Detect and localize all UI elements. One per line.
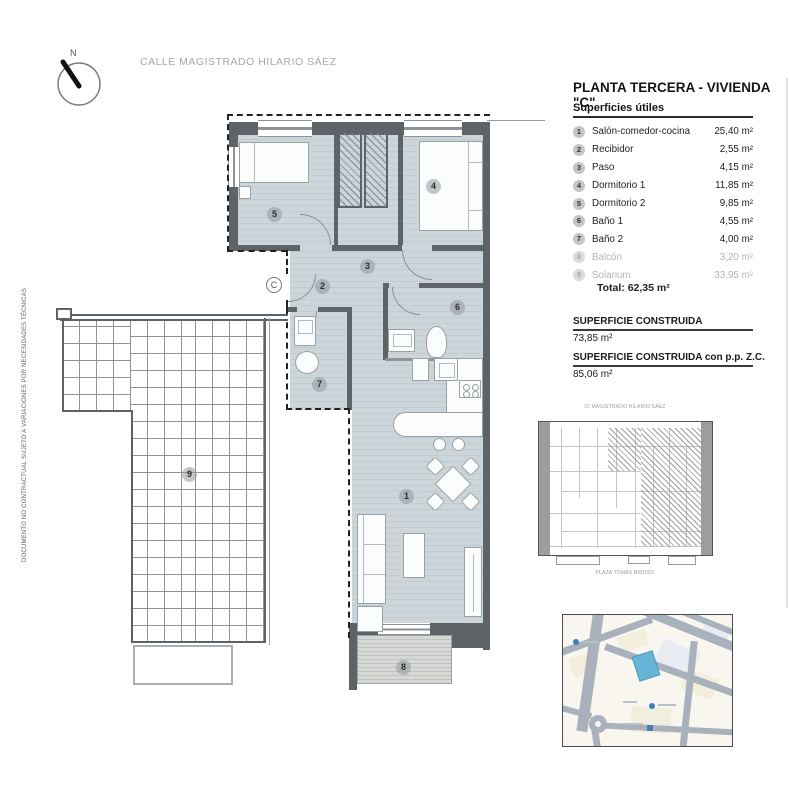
row-name: Dormitorio 1 xyxy=(592,180,715,191)
room-label-3: 3 xyxy=(360,259,375,274)
boundary-bath2-bottom xyxy=(286,408,350,410)
solarium-edge-left-lower xyxy=(131,410,133,643)
disclaimer-note: DOCUMENTO NO CONTRACTUAL SUJETO A VARIAC… xyxy=(22,227,28,562)
solarium-edge-right xyxy=(264,318,266,643)
bath2-toilet-icon xyxy=(295,351,319,374)
row-value: 3,20 m² xyxy=(720,252,753,263)
room-label-5: 5 xyxy=(267,207,282,222)
north-letter: N xyxy=(70,48,77,58)
keyplan-balcony-stub xyxy=(628,556,650,564)
keyplan-unit-highlight xyxy=(641,428,701,546)
surfaces-heading: Superficies útiles xyxy=(573,102,664,114)
row-name: Baño 2 xyxy=(592,234,720,245)
table-row: 7Baño 24,00 m² xyxy=(573,230,753,248)
bed1-pillow-line xyxy=(468,142,469,230)
boundary-top xyxy=(227,114,490,116)
site-line xyxy=(487,120,545,121)
room-label-8: 8 xyxy=(396,660,411,675)
row-value: 4,15 m² xyxy=(720,162,753,173)
stove-icon xyxy=(459,380,481,398)
closet-icon-right xyxy=(364,131,388,208)
built-area-zc-label: SUPERFICIE CONSTRUIDA con p.p. Z.C. xyxy=(573,352,765,363)
wall-under-closets xyxy=(332,245,402,251)
bath2-sink-icon xyxy=(294,316,316,346)
solarium-notch xyxy=(56,308,72,320)
sofa-cushion-line xyxy=(363,544,385,545)
kitchen-unit xyxy=(412,358,429,381)
solarium-edge-bottom xyxy=(131,641,266,643)
row-number: 6 xyxy=(573,215,585,227)
row-value: 11,85 m² xyxy=(715,180,753,191)
tv-unit-icon xyxy=(464,547,482,617)
row-number: 4 xyxy=(573,180,585,192)
bed1-line-b xyxy=(468,210,483,211)
stool-icon xyxy=(433,438,446,451)
keyplan-band-right xyxy=(701,422,712,555)
row-value: 25,40 m² xyxy=(714,126,753,137)
rule xyxy=(573,329,753,331)
stool-icon xyxy=(452,438,465,451)
table-row: 2Recibidor2,55 m² xyxy=(573,141,753,159)
row-name: Paso xyxy=(592,162,720,173)
tv-line xyxy=(473,554,474,612)
boundary-living-left xyxy=(348,408,350,638)
map-label-blur xyxy=(621,723,643,725)
table-row: 8Balcón3,20 m² xyxy=(573,248,753,266)
keyplan-line xyxy=(579,428,580,498)
wall-balcony-left xyxy=(349,630,357,690)
wall-bath1-top-a xyxy=(383,283,389,288)
row-value: 9,85 m² xyxy=(720,198,753,209)
row-number: 7 xyxy=(573,233,585,245)
boundary-left xyxy=(227,114,229,252)
table-row: 5Dormitorio 29,85 m² xyxy=(573,195,753,213)
bed2-icon xyxy=(239,142,309,183)
row-number: 3 xyxy=(573,162,585,174)
room-label-6: 6 xyxy=(450,300,465,315)
map-label-blur xyxy=(582,641,598,643)
map-label-blur xyxy=(658,704,676,706)
window-living xyxy=(378,624,430,635)
bath1-sink-icon xyxy=(388,329,415,352)
closet-icon-left xyxy=(338,131,362,208)
keyplan-band-left xyxy=(539,422,550,555)
solarium-edge-step xyxy=(62,410,132,412)
location-map-thumbnail xyxy=(562,614,733,747)
armchair-icon xyxy=(357,606,383,632)
room-label-9: 9 xyxy=(182,467,197,482)
unit-letter-label: C xyxy=(266,277,282,293)
bed2-pillow-line xyxy=(254,143,255,182)
burner xyxy=(463,384,470,391)
solarium-edge-right-outer xyxy=(269,318,270,645)
bath2-sink-basin xyxy=(298,320,313,334)
room-label-1: 1 xyxy=(399,489,414,504)
row-number: 9 xyxy=(573,269,585,281)
row-name: Balcón xyxy=(592,252,720,263)
keyplan-balcony-stub xyxy=(668,556,696,565)
window-bedroom2 xyxy=(258,120,312,137)
bath1-toilet-icon xyxy=(426,326,447,358)
boundary-entry-upper xyxy=(286,250,288,274)
row-name: Dormitorio 2 xyxy=(592,198,720,209)
window-bedroom1 xyxy=(404,120,462,137)
row-value: 2,55 m² xyxy=(720,144,753,155)
kitchen-bar xyxy=(393,412,483,437)
keyplan-line xyxy=(550,513,640,514)
table-row: 6Baño 14,55 m² xyxy=(573,212,753,230)
map-busstop-icon xyxy=(647,725,653,731)
floorplan-page: N CALLE MAGISTRADO HILARIO SÁEZ DOCUMENT… xyxy=(0,0,790,795)
street-label: CALLE MAGISTRADO HILARIO SÁEZ xyxy=(140,56,337,68)
solarium-annex xyxy=(133,645,233,685)
keyplan-thumbnail xyxy=(538,421,713,556)
sofa-back-line xyxy=(363,515,364,603)
built-area-value: 73,85 m² xyxy=(573,333,612,344)
keyplan-balcony-stub xyxy=(556,556,600,565)
burner xyxy=(472,391,479,398)
row-value: 4,55 m² xyxy=(720,216,753,227)
sofa-cushion-line xyxy=(363,574,385,575)
sofa-icon xyxy=(357,514,386,604)
row-value: 33,95 m² xyxy=(714,270,753,281)
kitchen-sink-basin xyxy=(439,363,455,378)
keyplan-street-top: C/ MAGISTRADO HILARIO SÁEZ xyxy=(560,404,690,410)
nightstand-icon xyxy=(239,186,251,199)
wall-bath1-top-b xyxy=(419,283,483,288)
room-label-2: 2 xyxy=(315,279,330,294)
burner xyxy=(472,384,479,391)
table-row: 4Dormitorio 111,85 m² xyxy=(573,177,753,195)
kitchen-sink-icon xyxy=(434,358,458,381)
row-number: 5 xyxy=(573,198,585,210)
heading-rule xyxy=(573,116,753,118)
burner xyxy=(463,391,470,398)
wall-right xyxy=(483,122,490,650)
row-number: 2 xyxy=(573,144,585,156)
row-name: Baño 1 xyxy=(592,216,720,227)
row-number: 8 xyxy=(573,251,585,263)
map-roundabout xyxy=(589,715,607,733)
room-label-4: 4 xyxy=(426,179,441,194)
bath1-sink-basin xyxy=(393,334,412,347)
total-area: Total: 62,35 m² xyxy=(597,282,670,294)
wall-closet-bed1 xyxy=(398,128,403,245)
rule xyxy=(573,365,753,367)
row-name: Solarium xyxy=(592,270,714,281)
keyplan-unit-highlight-upper xyxy=(608,428,641,471)
coffee-table-icon xyxy=(403,533,425,578)
row-value: 4,00 m² xyxy=(720,234,753,245)
solarium-railing-top xyxy=(60,314,288,321)
north-arrow-icon: N xyxy=(50,42,110,110)
wall-corner-block xyxy=(452,623,490,648)
boundary-step xyxy=(227,250,287,252)
map-label-blur xyxy=(623,701,637,703)
table-row: 1Salón-comedor-cocina25,40 m² xyxy=(573,123,753,141)
keyplan-street-bottom: PLAZA TOMÁS BRIOSO xyxy=(570,570,680,576)
row-name: Salón-comedor-cocina xyxy=(592,126,714,137)
row-number: 1 xyxy=(573,126,585,138)
surfaces-table: 1Salón-comedor-cocina25,40 m² 2Recibidor… xyxy=(573,123,753,284)
map-pin-icon xyxy=(649,703,655,709)
keyplan-line xyxy=(550,471,640,472)
solarium-grid-lower xyxy=(131,318,264,643)
map-pin-icon xyxy=(573,639,579,645)
room-label-7: 7 xyxy=(312,377,327,392)
built-area-zc-value: 85,06 m² xyxy=(573,369,612,380)
table-row: 3Paso4,15 m² xyxy=(573,159,753,177)
bed1-line-a xyxy=(468,162,483,163)
boundary-bath2 xyxy=(286,312,288,410)
solarium-edge-left xyxy=(62,318,64,412)
wall-bath2-right xyxy=(347,307,352,410)
keyplan-line xyxy=(550,546,701,547)
page-edge-line xyxy=(786,78,788,608)
row-name: Recibidor xyxy=(592,144,720,155)
built-area-label: SUPERFICIE CONSTRUIDA xyxy=(573,316,702,327)
wall-under-bed1 xyxy=(432,245,483,251)
